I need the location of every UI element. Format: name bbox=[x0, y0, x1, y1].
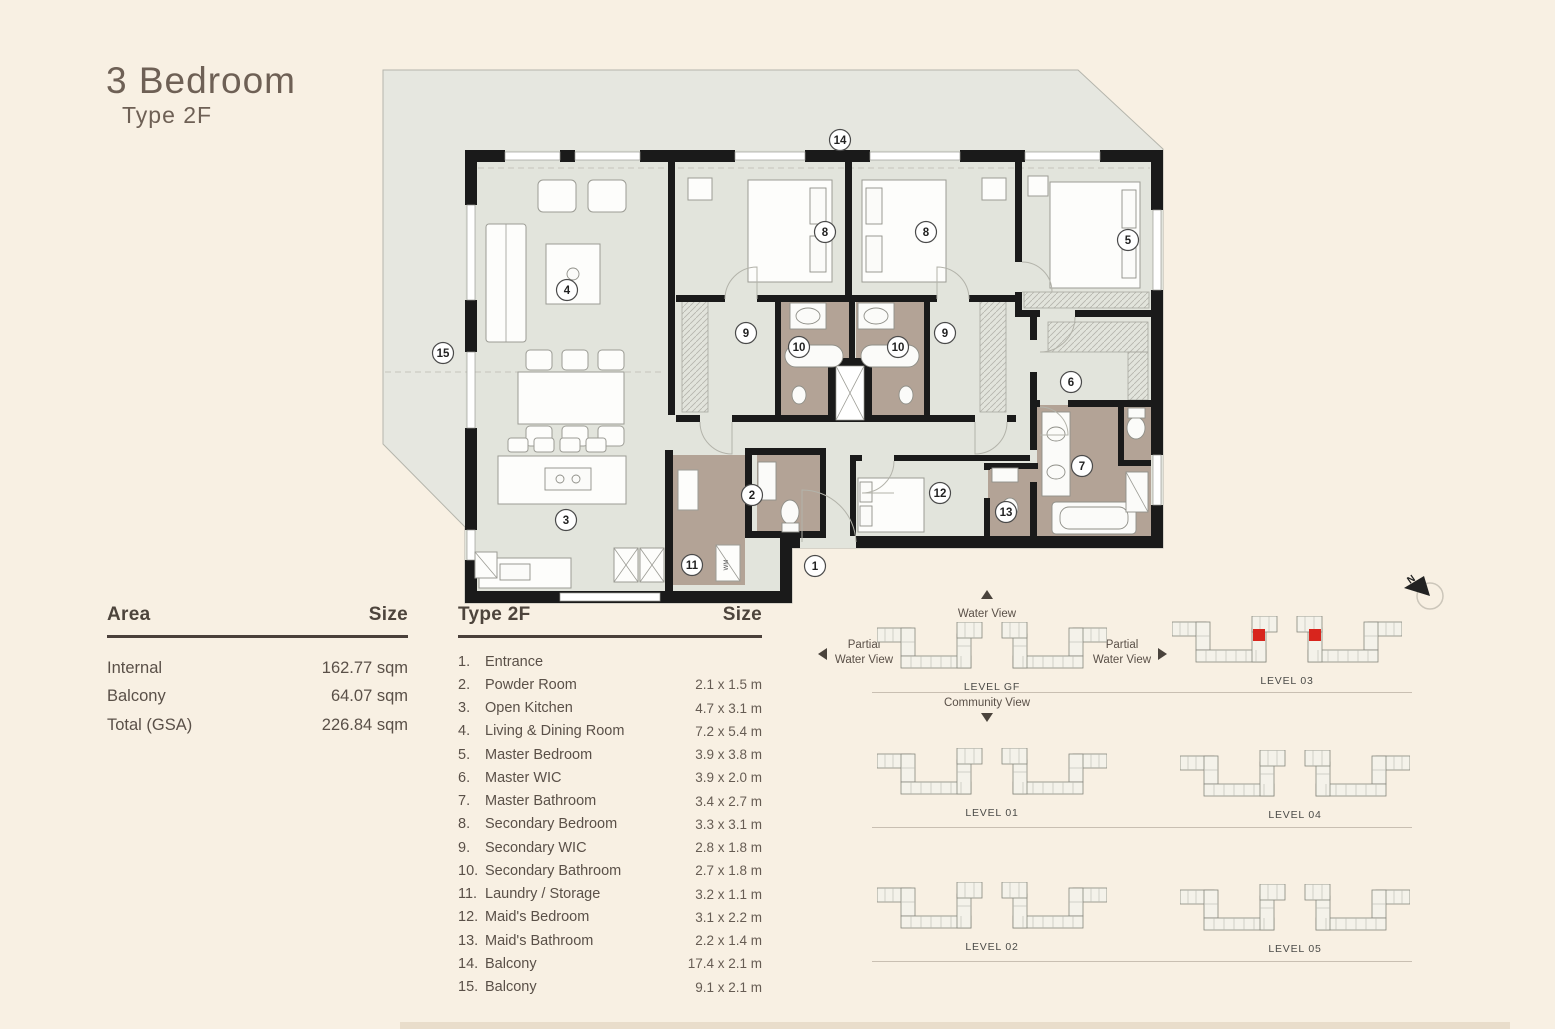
unit-label-number: 6 bbox=[1068, 377, 1074, 389]
unit-label-number: 5 bbox=[1125, 235, 1132, 247]
room-row-number: 4. bbox=[458, 723, 485, 739]
unit-label-number: 9 bbox=[743, 328, 749, 340]
room-row-number: 2. bbox=[458, 677, 485, 693]
room-row: 14.Balcony17.4 x 2.1 m bbox=[458, 952, 762, 975]
room-row: 2.Powder Room2.1 x 1.5 m bbox=[458, 673, 762, 696]
keyplan-divider-1 bbox=[872, 692, 1412, 693]
room-row-size: 3.1 x 2.2 m bbox=[695, 910, 762, 925]
unit-label-number: 12 bbox=[934, 488, 947, 500]
room-row-label: Maid's Bathroom bbox=[485, 933, 695, 949]
page-title: 3 Bedroom bbox=[106, 60, 296, 102]
room-row-label: Powder Room bbox=[485, 677, 695, 693]
room-row-label: Balcony bbox=[485, 956, 688, 972]
unit-label-number: 10 bbox=[793, 342, 806, 354]
room-row: 10.Secondary Bathroom2.7 x 1.8 m bbox=[458, 859, 762, 882]
partial-water-view-left-arrow-icon bbox=[818, 648, 827, 660]
page-subtitle: Type 2F bbox=[122, 102, 212, 129]
keyplan-buildings bbox=[877, 622, 1107, 672]
keyplan-level: LEVEL 02 bbox=[877, 882, 1107, 953]
unit-label-number: 3 bbox=[563, 515, 569, 527]
footer-strip bbox=[400, 1022, 1510, 1029]
room-row: 7.Master Bathroom3.4 x 2.7 m bbox=[458, 790, 762, 813]
area-table-body: Internal162.77 sqmBalcony64.07 sqmTotal … bbox=[107, 654, 408, 740]
room-row: 11.Laundry / Storage3.2 x 1.1 m bbox=[458, 883, 762, 906]
area-row-label: Total (GSA) bbox=[107, 716, 192, 735]
room-row: 3.Open Kitchen4.7 x 3.1 m bbox=[458, 697, 762, 720]
unit-label-number: 2 bbox=[749, 490, 755, 502]
room-row-size: 2.7 x 1.8 m bbox=[695, 863, 762, 878]
room-row-label: Living & Dining Room bbox=[485, 723, 695, 739]
keyplan-level-label: LEVEL 05 bbox=[1180, 943, 1410, 955]
area-table: Area Size Internal162.77 sqmBalcony64.07… bbox=[107, 604, 408, 740]
room-row: 12.Maid's Bedroom3.1 x 2.2 m bbox=[458, 906, 762, 929]
unit-label-number: 8 bbox=[822, 227, 829, 239]
keyplan-level-label: LEVEL 02 bbox=[877, 941, 1107, 953]
area-row: Balcony64.07 sqm bbox=[107, 683, 408, 712]
room-row-label: Open Kitchen bbox=[485, 700, 695, 716]
room-row-label: Balcony bbox=[485, 979, 695, 995]
room-row: 9.Secondary WIC2.8 x 1.8 m bbox=[458, 836, 762, 859]
room-row-label: Secondary Bathroom bbox=[485, 863, 695, 879]
room-row-label: Secondary WIC bbox=[485, 840, 695, 856]
room-row-number: 14. bbox=[458, 956, 485, 972]
room-row-number: 12. bbox=[458, 909, 485, 925]
room-row: 4.Living & Dining Room7.2 x 5.4 m bbox=[458, 720, 762, 743]
area-table-col-size: Size bbox=[369, 604, 408, 626]
room-row-number: 5. bbox=[458, 747, 485, 763]
rooms-table: Type 2F Size 1.Entrance2.Powder Room2.1 … bbox=[458, 604, 762, 999]
keyplan-level: LEVEL 03 bbox=[1172, 616, 1402, 687]
room-row-number: 3. bbox=[458, 700, 485, 716]
room-row-label: Master Bedroom bbox=[485, 747, 695, 763]
highlighted-unit bbox=[1309, 629, 1321, 641]
room-row-size: 17.4 x 2.1 m bbox=[688, 956, 762, 971]
keyplan-level: LEVEL 04 bbox=[1180, 750, 1410, 821]
room-row-label: Secondary Bedroom bbox=[485, 816, 695, 832]
room-row-label: Master WIC bbox=[485, 770, 695, 786]
keyplan-buildings bbox=[1172, 616, 1402, 666]
north-compass: N bbox=[1398, 568, 1454, 620]
unit-label-number: 10 bbox=[892, 342, 905, 354]
room-row-number: 13. bbox=[458, 933, 485, 949]
unit-label-number: 14 bbox=[834, 135, 847, 147]
area-row-value: 162.77 sqm bbox=[322, 659, 408, 678]
room-row-size: 3.9 x 3.8 m bbox=[695, 747, 762, 762]
room-row-size: 4.7 x 3.1 m bbox=[695, 701, 762, 716]
keyplan-level: LEVEL GF bbox=[877, 622, 1107, 693]
community-view-label: Community View bbox=[927, 696, 1047, 711]
keyplan-buildings bbox=[877, 748, 1107, 798]
unit-label-number: 7 bbox=[1079, 461, 1085, 473]
washing-machine-label: WM bbox=[724, 560, 730, 571]
room-row-size: 3.4 x 2.7 m bbox=[695, 794, 762, 809]
rooms-table-col-size: Size bbox=[723, 604, 762, 626]
partial-water-view-right-arrow-icon bbox=[1158, 648, 1167, 660]
highlighted-unit bbox=[1253, 629, 1265, 641]
rooms-table-rule bbox=[458, 635, 762, 638]
room-row-number: 1. bbox=[458, 654, 485, 670]
area-row-label: Internal bbox=[107, 659, 162, 678]
room-row-label: Maid's Bedroom bbox=[485, 909, 695, 925]
room-row-size: 3.3 x 3.1 m bbox=[695, 817, 762, 832]
unit-label-number: 9 bbox=[942, 328, 948, 340]
area-row: Total (GSA)226.84 sqm bbox=[107, 711, 408, 740]
room-row: 15.Balcony9.1 x 2.1 m bbox=[458, 976, 762, 999]
area-row-label: Balcony bbox=[107, 687, 166, 706]
keyplan-buildings bbox=[1180, 884, 1410, 934]
keyplan-level-label: LEVEL 03 bbox=[1172, 675, 1402, 687]
room-row-number: 6. bbox=[458, 770, 485, 786]
area-table-col-label: Area bbox=[107, 604, 150, 626]
keyplan-divider-2 bbox=[872, 827, 1412, 828]
room-row-label: Entrance bbox=[485, 654, 762, 670]
room-row-size: 3.2 x 1.1 m bbox=[695, 887, 762, 902]
room-row-label: Laundry / Storage bbox=[485, 886, 695, 902]
room-row-label: Master Bathroom bbox=[485, 793, 695, 809]
room-row: 8.Secondary Bedroom3.3 x 3.1 m bbox=[458, 813, 762, 836]
duct-shaft bbox=[836, 366, 864, 420]
community-view-arrow-icon bbox=[981, 713, 993, 722]
rooms-table-col-label: Type 2F bbox=[458, 604, 531, 626]
keyplan-level: LEVEL 05 bbox=[1180, 884, 1410, 955]
room-row-number: 7. bbox=[458, 793, 485, 809]
room-row: 6.Master WIC3.9 x 2.0 m bbox=[458, 766, 762, 789]
keyplan-level-label: LEVEL 01 bbox=[877, 807, 1107, 819]
keyplan-level-label: LEVEL 04 bbox=[1180, 809, 1410, 821]
unit-label-number: 13 bbox=[1000, 507, 1013, 519]
rooms-table-body: 1.Entrance2.Powder Room2.1 x 1.5 m3.Open… bbox=[458, 650, 762, 999]
room-row-number: 15. bbox=[458, 979, 485, 995]
area-row-value: 64.07 sqm bbox=[331, 687, 408, 706]
room-row-number: 9. bbox=[458, 840, 485, 856]
keyplan-buildings bbox=[877, 882, 1107, 932]
room-row-size: 2.8 x 1.8 m bbox=[695, 840, 762, 855]
area-row-value: 226.84 sqm bbox=[322, 716, 408, 735]
room-row-size: 3.9 x 2.0 m bbox=[695, 770, 762, 785]
room-row: 13.Maid's Bathroom2.2 x 1.4 m bbox=[458, 929, 762, 952]
unit-label-number: 11 bbox=[686, 560, 699, 572]
unit-label-number: 1 bbox=[812, 561, 819, 573]
unit-label-number: 8 bbox=[923, 227, 930, 239]
unit-label-number: 15 bbox=[437, 348, 450, 360]
room-row-size: 9.1 x 2.1 m bbox=[695, 980, 762, 995]
room-row-number: 8. bbox=[458, 816, 485, 832]
room-row: 1.Entrance bbox=[458, 650, 762, 673]
room-row-size: 7.2 x 5.4 m bbox=[695, 724, 762, 739]
room-row-number: 10. bbox=[458, 863, 485, 879]
floorplan: 1234567889910101112131415 WM bbox=[370, 55, 1190, 615]
room-row-size: 2.2 x 1.4 m bbox=[695, 933, 762, 948]
room-row: 5.Master Bedroom3.9 x 3.8 m bbox=[458, 743, 762, 766]
water-view-label: Water View bbox=[927, 607, 1047, 622]
keyplan-level: LEVEL 01 bbox=[877, 748, 1107, 819]
area-row: Internal162.77 sqm bbox=[107, 654, 408, 683]
keyplan-buildings bbox=[1180, 750, 1410, 800]
keyplan-divider-3 bbox=[872, 961, 1412, 962]
unit-label-number: 4 bbox=[564, 285, 571, 297]
area-table-rule bbox=[107, 635, 408, 638]
water-view-arrow-icon bbox=[981, 590, 993, 599]
room-row-number: 11. bbox=[458, 886, 485, 902]
room-row-size: 2.1 x 1.5 m bbox=[695, 677, 762, 692]
